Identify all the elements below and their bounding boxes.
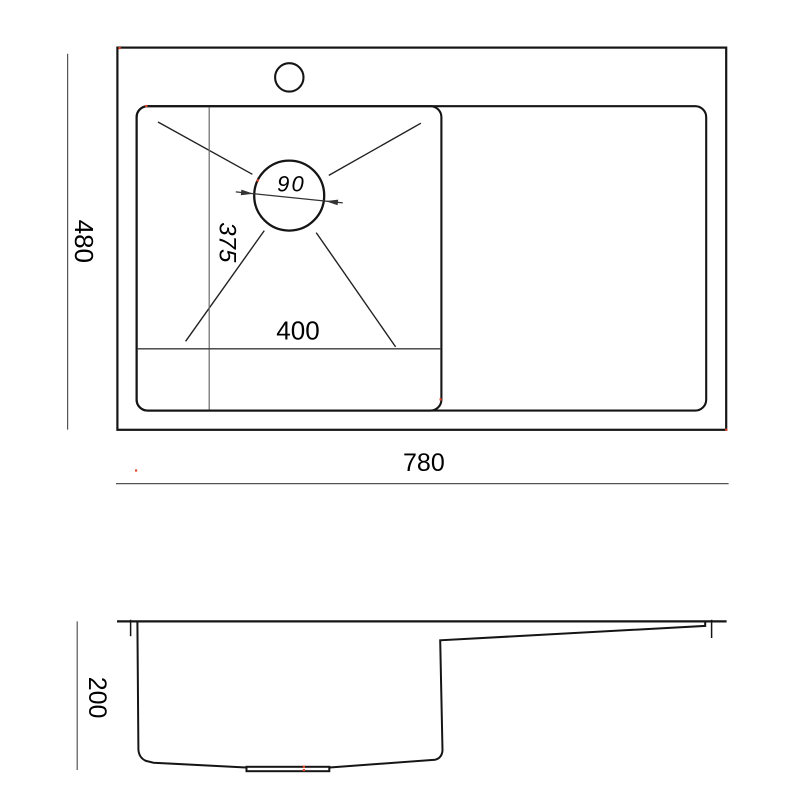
svg-text:480: 480 bbox=[69, 220, 99, 263]
svg-text:200: 200 bbox=[83, 677, 111, 719]
svg-text:90: 90 bbox=[277, 171, 306, 196]
svg-text:400: 400 bbox=[276, 315, 319, 345]
svg-text:780: 780 bbox=[403, 449, 445, 477]
svg-text:375: 375 bbox=[214, 222, 241, 263]
